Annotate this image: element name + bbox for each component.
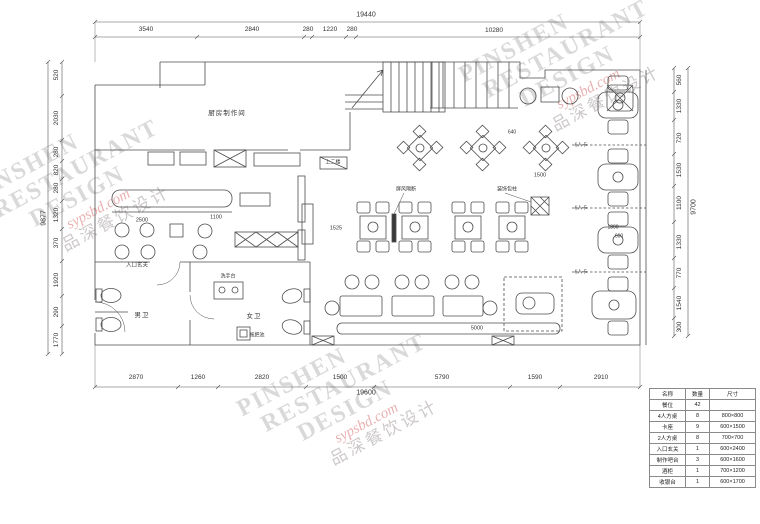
legend-cell: 800×800 [710,411,756,422]
dim-left-segment: 1920 [54,273,61,287]
room-label-mens: 男卫 [135,313,150,320]
label-booth: 6人卡 [575,144,588,149]
legend-cell: 4人方桌 [650,411,686,422]
legend-header: 数量 [686,389,710,400]
legend-cell: 600×1700 [710,477,756,488]
legend-cell: 600×1600 [710,455,756,466]
dim-bottom-segment: 2910 [594,375,608,382]
legend-cell: 入口玄关 [650,444,686,455]
label-booth: 6人卡 [575,271,588,276]
dim-right-segment: 1530 [677,163,684,177]
dim-left-total: 9877 [41,210,48,226]
dim-top-segment: 10280 [485,28,503,35]
label-column: 装饰包柱 [497,188,517,193]
room-label-stairs: 上二楼 [325,161,340,166]
dim-right-segment: 1330 [677,99,684,113]
room-label-womens: 女卫 [247,314,262,321]
dim-top-segment: 3540 [139,27,153,34]
legend-cell: 700×1200 [710,466,756,477]
dim-right-segment: 560 [677,75,684,86]
legend-cell: 9 [686,422,710,433]
staircase [345,62,445,112]
legend-row: 卡座9600×1500 [650,422,756,433]
dim-left-segment: 1770 [54,333,61,347]
legend-row: 酒柜1700×1200 [650,466,756,477]
inline-dim: 5000 [471,326,483,332]
legend-cell: 2人方桌 [650,433,686,444]
legend-cell: 卡座 [650,422,686,433]
legend-header: 名称 [650,389,686,400]
inline-dim: 2500 [136,218,148,224]
inline-dim: 1800 [607,226,618,231]
inline-dim: 1100 [210,215,222,221]
legend-cell: 餐位 [650,400,686,411]
legend-cell: 3 [686,455,710,466]
dim-left-segment: 290 [54,307,61,318]
legend-row: 制作吧台3600×1600 [650,455,756,466]
label-screen: 屏风隔断 [396,188,416,193]
plan-drawing [0,0,760,524]
inline-dim: 1525 [330,226,342,232]
legend-cell: 1 [686,444,710,455]
walls [95,62,646,345]
dim-top-segment: 280 [303,27,314,34]
legend-cell: 42 [686,400,710,411]
dim-top-segment: 2840 [245,27,259,34]
dim-top-segment: 1220 [323,27,337,34]
dim-bottom-total: 19600 [356,390,375,397]
room-label-kitchen: 厨房制作间 [208,111,246,118]
dim-bottom-segment: 2820 [255,375,269,382]
legend-cell: 酒柜 [650,466,686,477]
legend-cell: 制作吧台 [650,455,686,466]
dim-right-segment: 1100 [677,196,684,210]
legend-cell: 700×700 [710,433,756,444]
floorplan-canvas: PINSHEN RESTAURANT DESIGN sypsbd.com 品深餐… [0,0,760,524]
legend-row: 餐位42 [650,400,756,411]
restrooms [95,262,310,345]
dim-left-segment: 280 [54,147,61,158]
dim-top-segment: 280 [347,27,358,34]
dim-right-total: 9700 [691,199,698,215]
dim-top-total: 19440 [356,12,375,19]
dim-right-segment: 770 [677,268,684,279]
dim-bottom-segment: 1500 [333,375,347,382]
inline-dim: 600 [615,235,623,240]
dim-right-segment: 1330 [677,235,684,249]
inline-dim: 640 [508,131,516,136]
room-label-entry: 入口玄关 [126,263,148,269]
dim-bottom-segment: 5790 [435,375,449,382]
dim-left-segment: 1320 [54,208,61,222]
banquette-row [312,275,562,345]
dim-left-segment: 820 [54,165,61,176]
diamond-tables [397,125,569,171]
legend-cell: 收银台 [650,477,686,488]
legend-header: 尺寸 [710,389,756,400]
legend-header-row: 名称数量尺寸 [650,389,756,400]
legend-cell: 600×2400 [710,444,756,455]
legend-row: 2人方桌8700×700 [650,433,756,444]
dim-right-segment: 300 [677,322,684,333]
legend-cell: 1 [686,477,710,488]
square-tables-row [357,193,549,252]
dim-left-segment: 280 [54,183,61,194]
legend-cell [710,400,756,411]
legend-row: 4人方桌8800×800 [650,411,756,422]
legend-row: 入口玄关1600×2400 [650,444,756,455]
dim-bottom-segment: 1260 [191,375,205,382]
toprow-booths [430,62,633,111]
dim-right-segment: 720 [677,133,684,144]
serving-counters [148,150,347,169]
dim-bottom-segment: 2870 [129,375,143,382]
dim-bottom-segment: 1590 [528,375,542,382]
dim-left-segment: 370 [54,238,61,249]
legend-table: 名称数量尺寸 餐位424人方桌8800×800卡座9600×15002人方桌87… [649,388,756,488]
label-mop: 拖把池 [249,334,264,339]
dim-left-segment: 520 [54,70,61,81]
legend-cell: 8 [686,411,710,422]
dim-left-segment: 2030 [54,111,61,125]
legend-cell: 8 [686,433,710,444]
legend-cell: 600×1500 [710,422,756,433]
legend-cell: 1 [686,466,710,477]
dim-right-segment: 1540 [677,296,684,310]
label-booth: 6人卡 [575,207,588,212]
label-sink: 洗手台 [220,275,235,280]
inline-dim: 1500 [534,173,546,179]
legend-row: 收银台1600×1700 [650,477,756,488]
